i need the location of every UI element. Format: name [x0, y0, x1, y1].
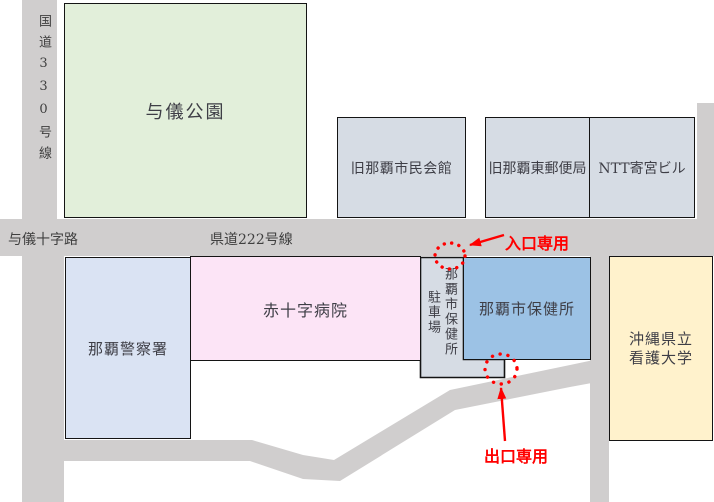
building-health-center: 那覇市保健所	[463, 257, 591, 360]
building-yogi-park: 与儀公園	[64, 3, 307, 218]
nursing-university-line1: 沖縄県立	[629, 330, 693, 349]
building-red-cross-hospital-label: 赤十字病院	[263, 297, 348, 321]
building-former-civic-hall-label: 旧那覇市民会館	[351, 158, 453, 178]
road-left-south	[22, 256, 64, 502]
building-nursing-university-label: 沖縄県立 看護大学	[629, 330, 693, 368]
building-police-station-label: 那覇警察署	[88, 338, 168, 359]
nursing-university-line2: 看護大学	[629, 349, 693, 368]
road-route222-label: 県道222号線	[210, 229, 293, 249]
exit-only-label: 出口専用	[484, 443, 548, 467]
building-red-cross-hospital: 赤十字病院	[190, 256, 421, 361]
building-police-station: 那覇警察署	[65, 257, 191, 439]
road-yogi-crossroads-label: 与儀十字路	[8, 229, 78, 249]
building-health-center-label: 那覇市保健所	[479, 298, 575, 319]
building-nursing-university: 沖縄県立 看護大学	[609, 256, 713, 441]
building-ntt-yosemiya-label: NTT寄宮ビル	[598, 158, 685, 178]
road-right-north	[697, 103, 714, 223]
building-yogi-park-label: 与儀公園	[146, 98, 226, 124]
parking-label-parking: 駐車場	[423, 290, 442, 335]
parking-label-health-center: 那覇市保健所	[440, 267, 459, 357]
building-former-civic-hall: 旧那覇市民会館	[337, 117, 466, 218]
road-route330-label: 国道330号線	[34, 14, 53, 167]
building-ntt-yosemiya: NTT寄宮ビル	[589, 117, 695, 218]
building-former-east-post-office: 旧那覇東郵便局	[485, 117, 590, 218]
entrance-only-label: 入口専用	[505, 230, 569, 254]
road-route222	[0, 219, 714, 256]
area-map: 与儀公園 旧那覇市民会館 旧那覇東郵便局 NTT寄宮ビル 那覇警察署 赤十字病院…	[0, 0, 714, 502]
building-former-east-post-office-label: 旧那覇東郵便局	[489, 158, 587, 178]
